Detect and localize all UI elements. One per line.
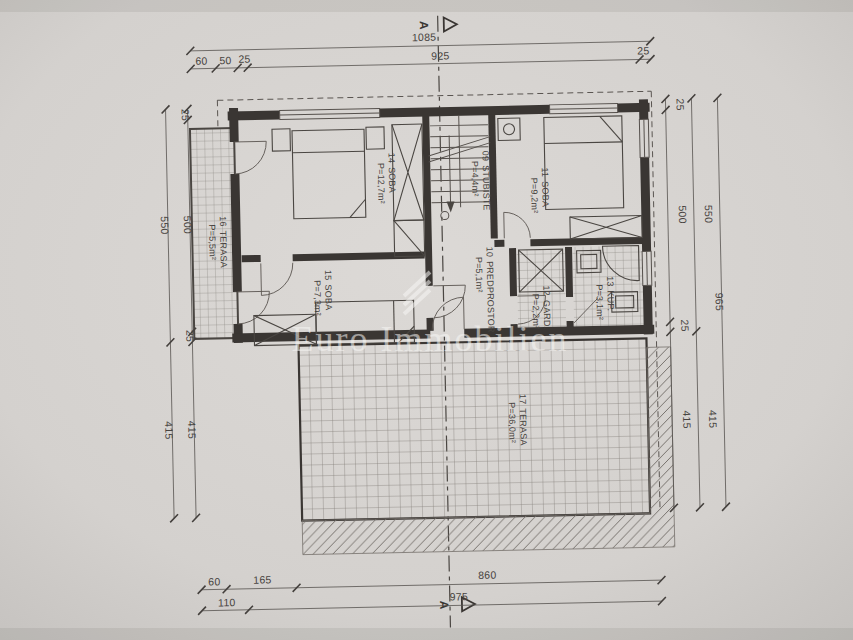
dim-total-width: 1085 [412, 31, 437, 44]
svg-text:P=5,5m²: P=5,5m² [207, 224, 218, 260]
section-letter: A [417, 21, 431, 30]
svg-text:500: 500 [182, 216, 194, 235]
svg-text:965: 965 [713, 293, 725, 312]
svg-text:925: 925 [431, 49, 450, 61]
svg-text:550: 550 [703, 205, 715, 224]
wall-stair-east [492, 115, 495, 239]
svg-text:25: 25 [180, 109, 192, 122]
svg-text:165: 165 [253, 573, 272, 585]
svg-text:415: 415 [163, 421, 175, 440]
svg-text:P=3,1m²: P=3,1m² [594, 284, 605, 320]
svg-text:25: 25 [679, 319, 691, 332]
svg-text:17TERASA: 17TERASA [518, 394, 529, 446]
svg-text:P=36,0m²: P=36,0m² [507, 402, 518, 443]
svg-text:860: 860 [478, 569, 497, 581]
svg-text:14SOBA: 14SOBA [386, 153, 397, 193]
svg-text:09STUBIŠTE: 09STUBIŠTE [480, 151, 491, 211]
svg-text:500: 500 [677, 205, 689, 224]
svg-text:25: 25 [637, 44, 650, 56]
photo-edge-shadow-top [0, 0, 853, 12]
svg-text:415: 415 [707, 410, 719, 429]
terrace-17-tiles [299, 338, 651, 520]
svg-text:25: 25 [184, 330, 196, 343]
svg-text:25: 25 [674, 98, 686, 111]
svg-text:60: 60 [208, 575, 221, 587]
svg-text:975: 975 [449, 590, 468, 602]
room-label-terasa17: 17TERASA P=36,0m² [507, 394, 529, 446]
watermark-text: Euro Immobilien [292, 319, 569, 359]
svg-text:P=4,4m²: P=4,4m² [470, 161, 481, 197]
svg-text:13KUP.: 13KUP. [605, 276, 616, 311]
svg-text:P=5,1m²: P=5,1m² [474, 257, 485, 293]
svg-text:15SOBA: 15SOBA [323, 270, 334, 310]
svg-text:P=7,3m²: P=7,3m² [312, 280, 323, 316]
photo-edge-shadow-bottom [0, 628, 853, 640]
svg-text:25: 25 [238, 53, 251, 65]
svg-text:11SOBA: 11SOBA [540, 167, 551, 207]
bathroom-tiles [573, 245, 645, 327]
svg-text:415: 415 [681, 410, 693, 429]
floor-plan-photo: A A [0, 0, 853, 640]
svg-text:415: 415 [186, 421, 198, 440]
svg-text:P=12,7m²: P=12,7m² [376, 163, 387, 204]
svg-text:550: 550 [159, 216, 171, 235]
svg-text:50: 50 [219, 54, 232, 66]
svg-text:16TERASA: 16TERASA [218, 216, 229, 268]
svg-text:110: 110 [218, 596, 236, 608]
svg-text:P=9,2m²: P=9,2m² [529, 178, 540, 214]
svg-text:60: 60 [195, 55, 208, 67]
floor-plan-drawing: A A [0, 0, 853, 640]
